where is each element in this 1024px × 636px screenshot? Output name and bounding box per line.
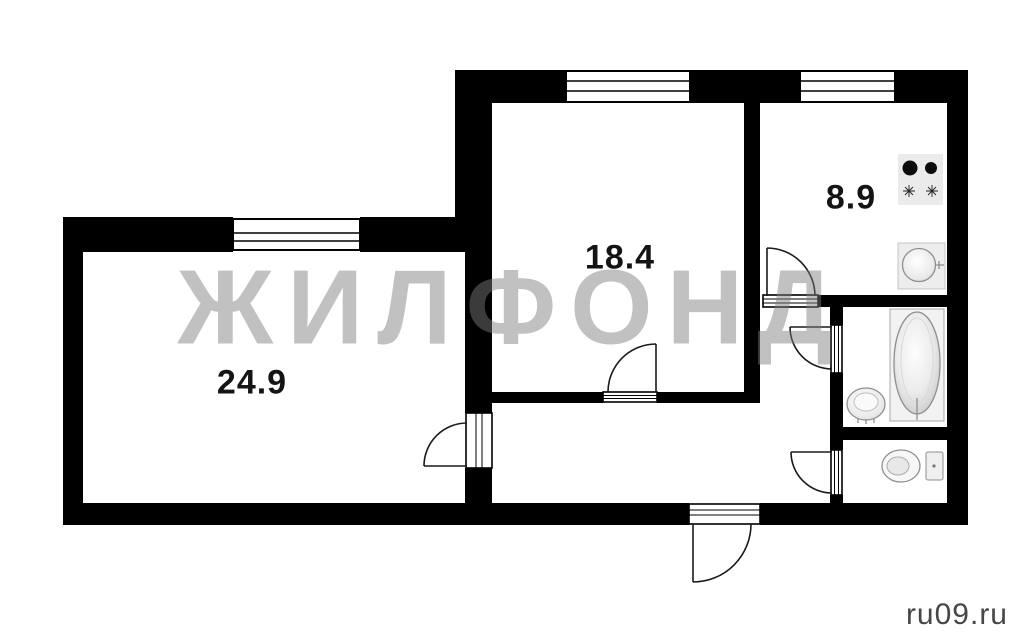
kitchen-door-sill — [763, 295, 818, 307]
stove-burner-icon — [925, 162, 937, 174]
site-credit-label: ru09.ru — [906, 598, 1008, 632]
door-sills — [466, 295, 842, 524]
window-kitchen — [800, 71, 895, 102]
toilet-flush-icon — [932, 464, 935, 467]
room-area-label-bedroom: 18.4 — [585, 239, 655, 278]
entrance-door-arc — [693, 524, 751, 582]
wall-bottom-b — [760, 503, 968, 525]
wall-kitchen-bath — [818, 295, 947, 307]
floor-plan: 24.9 18.4 8.9 ЖИЛФОНД ru09.ru — [0, 0, 1024, 636]
kitchen-sink-bowl — [903, 249, 936, 282]
wc-door-sill — [831, 450, 842, 495]
wall-hall-bath-a — [830, 307, 843, 325]
wall-bedroom-kitchen — [744, 103, 760, 403]
bathtub — [890, 309, 944, 421]
kitchen-door-arc — [767, 248, 815, 296]
stove-burner-icon — [903, 161, 918, 176]
entrance-door-sill — [689, 504, 760, 524]
wall-center-upper — [455, 70, 492, 252]
room-area-label-living: 24.9 — [217, 364, 287, 403]
floor-plan-drawing — [0, 0, 1024, 636]
window-living-room — [233, 219, 360, 250]
wall-bottom-a — [63, 503, 689, 525]
stove — [898, 154, 943, 205]
wall-top-left-b — [360, 217, 455, 252]
toilet — [882, 450, 943, 482]
bathroom-door-sill — [831, 325, 842, 373]
wall-top-left-a — [63, 217, 233, 252]
bathroom-door-arc — [790, 327, 832, 369]
bedroom-door-sill — [603, 392, 657, 402]
room-area-label-kitchen: 8.9 — [826, 179, 876, 218]
toilet-bowl-inner — [887, 457, 909, 475]
wall-center-lower-b — [465, 468, 492, 503]
wall-center-lower-a — [465, 252, 492, 413]
living-room-door-sill — [466, 413, 492, 468]
kitchen-sink — [898, 243, 945, 289]
bathroom-sink-inner — [854, 393, 878, 411]
window-bedroom — [566, 71, 690, 102]
bathroom-sink — [847, 388, 885, 424]
bedroom-door-arc — [608, 344, 656, 392]
living-room-door-arc — [424, 423, 467, 466]
wall-bedroom-hall-a — [492, 392, 603, 403]
stove-body — [898, 154, 943, 205]
wall-top-right-b — [690, 70, 800, 103]
wall-bath-wc — [830, 427, 947, 440]
wc-door-arc — [791, 452, 832, 493]
wall-left-exterior — [63, 217, 83, 525]
wall-hall-bath-c — [830, 495, 843, 503]
wall-right-exterior — [947, 70, 968, 525]
